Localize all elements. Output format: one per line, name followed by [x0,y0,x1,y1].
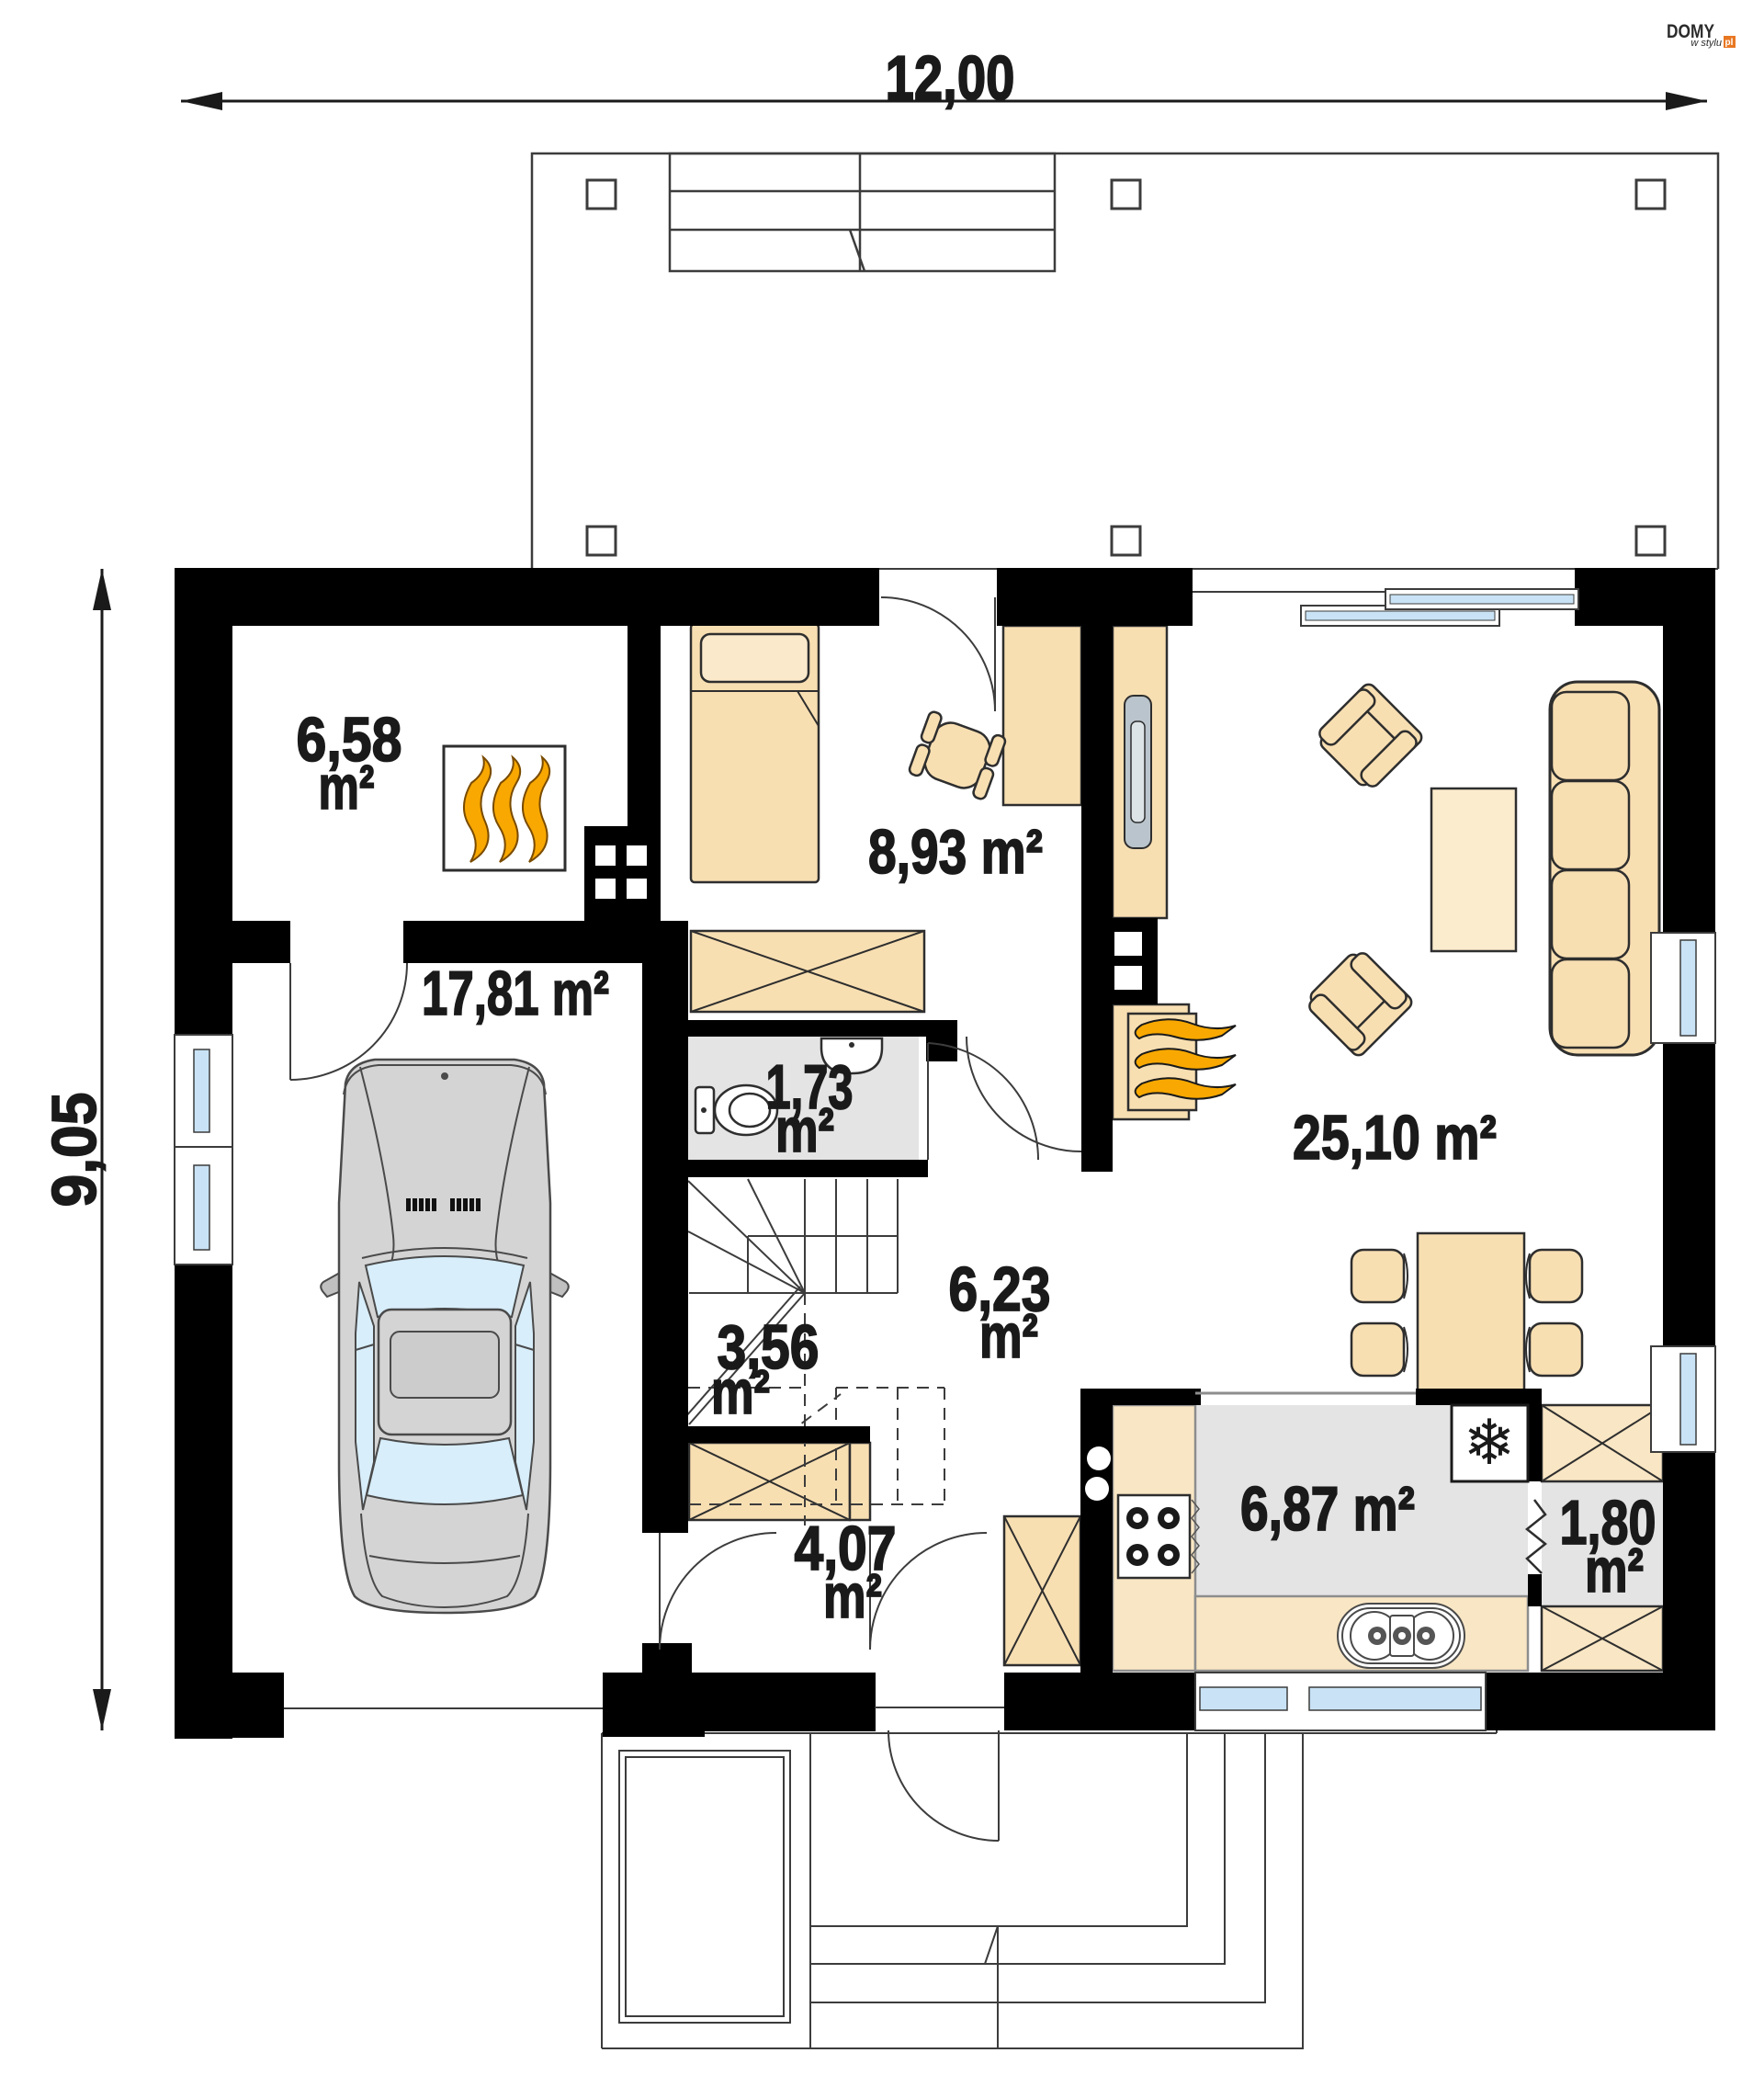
svg-text:m²: m² [711,1357,770,1427]
svg-text:25,10 m²: 25,10 m² [1293,1103,1497,1173]
svg-text:8,93 m²: 8,93 m² [868,817,1043,887]
svg-text:m²: m² [1585,1536,1644,1605]
svg-text:m²: m² [319,753,375,822]
svg-text:6,87 m²: 6,87 m² [1240,1474,1415,1544]
svg-text:m²: m² [823,1561,882,1631]
svg-text:m²: m² [775,1095,834,1165]
svg-text:17,81 m²: 17,81 m² [422,958,609,1028]
svg-text:pl: pl [1725,38,1734,48]
svg-text:9,05: 9,05 [40,1093,109,1208]
svg-text:m²: m² [979,1301,1038,1371]
svg-text:❄: ❄ [1464,1408,1516,1478]
svg-text:w stylu: w stylu [1690,38,1722,49]
svg-text:12,00: 12,00 [886,43,1015,113]
